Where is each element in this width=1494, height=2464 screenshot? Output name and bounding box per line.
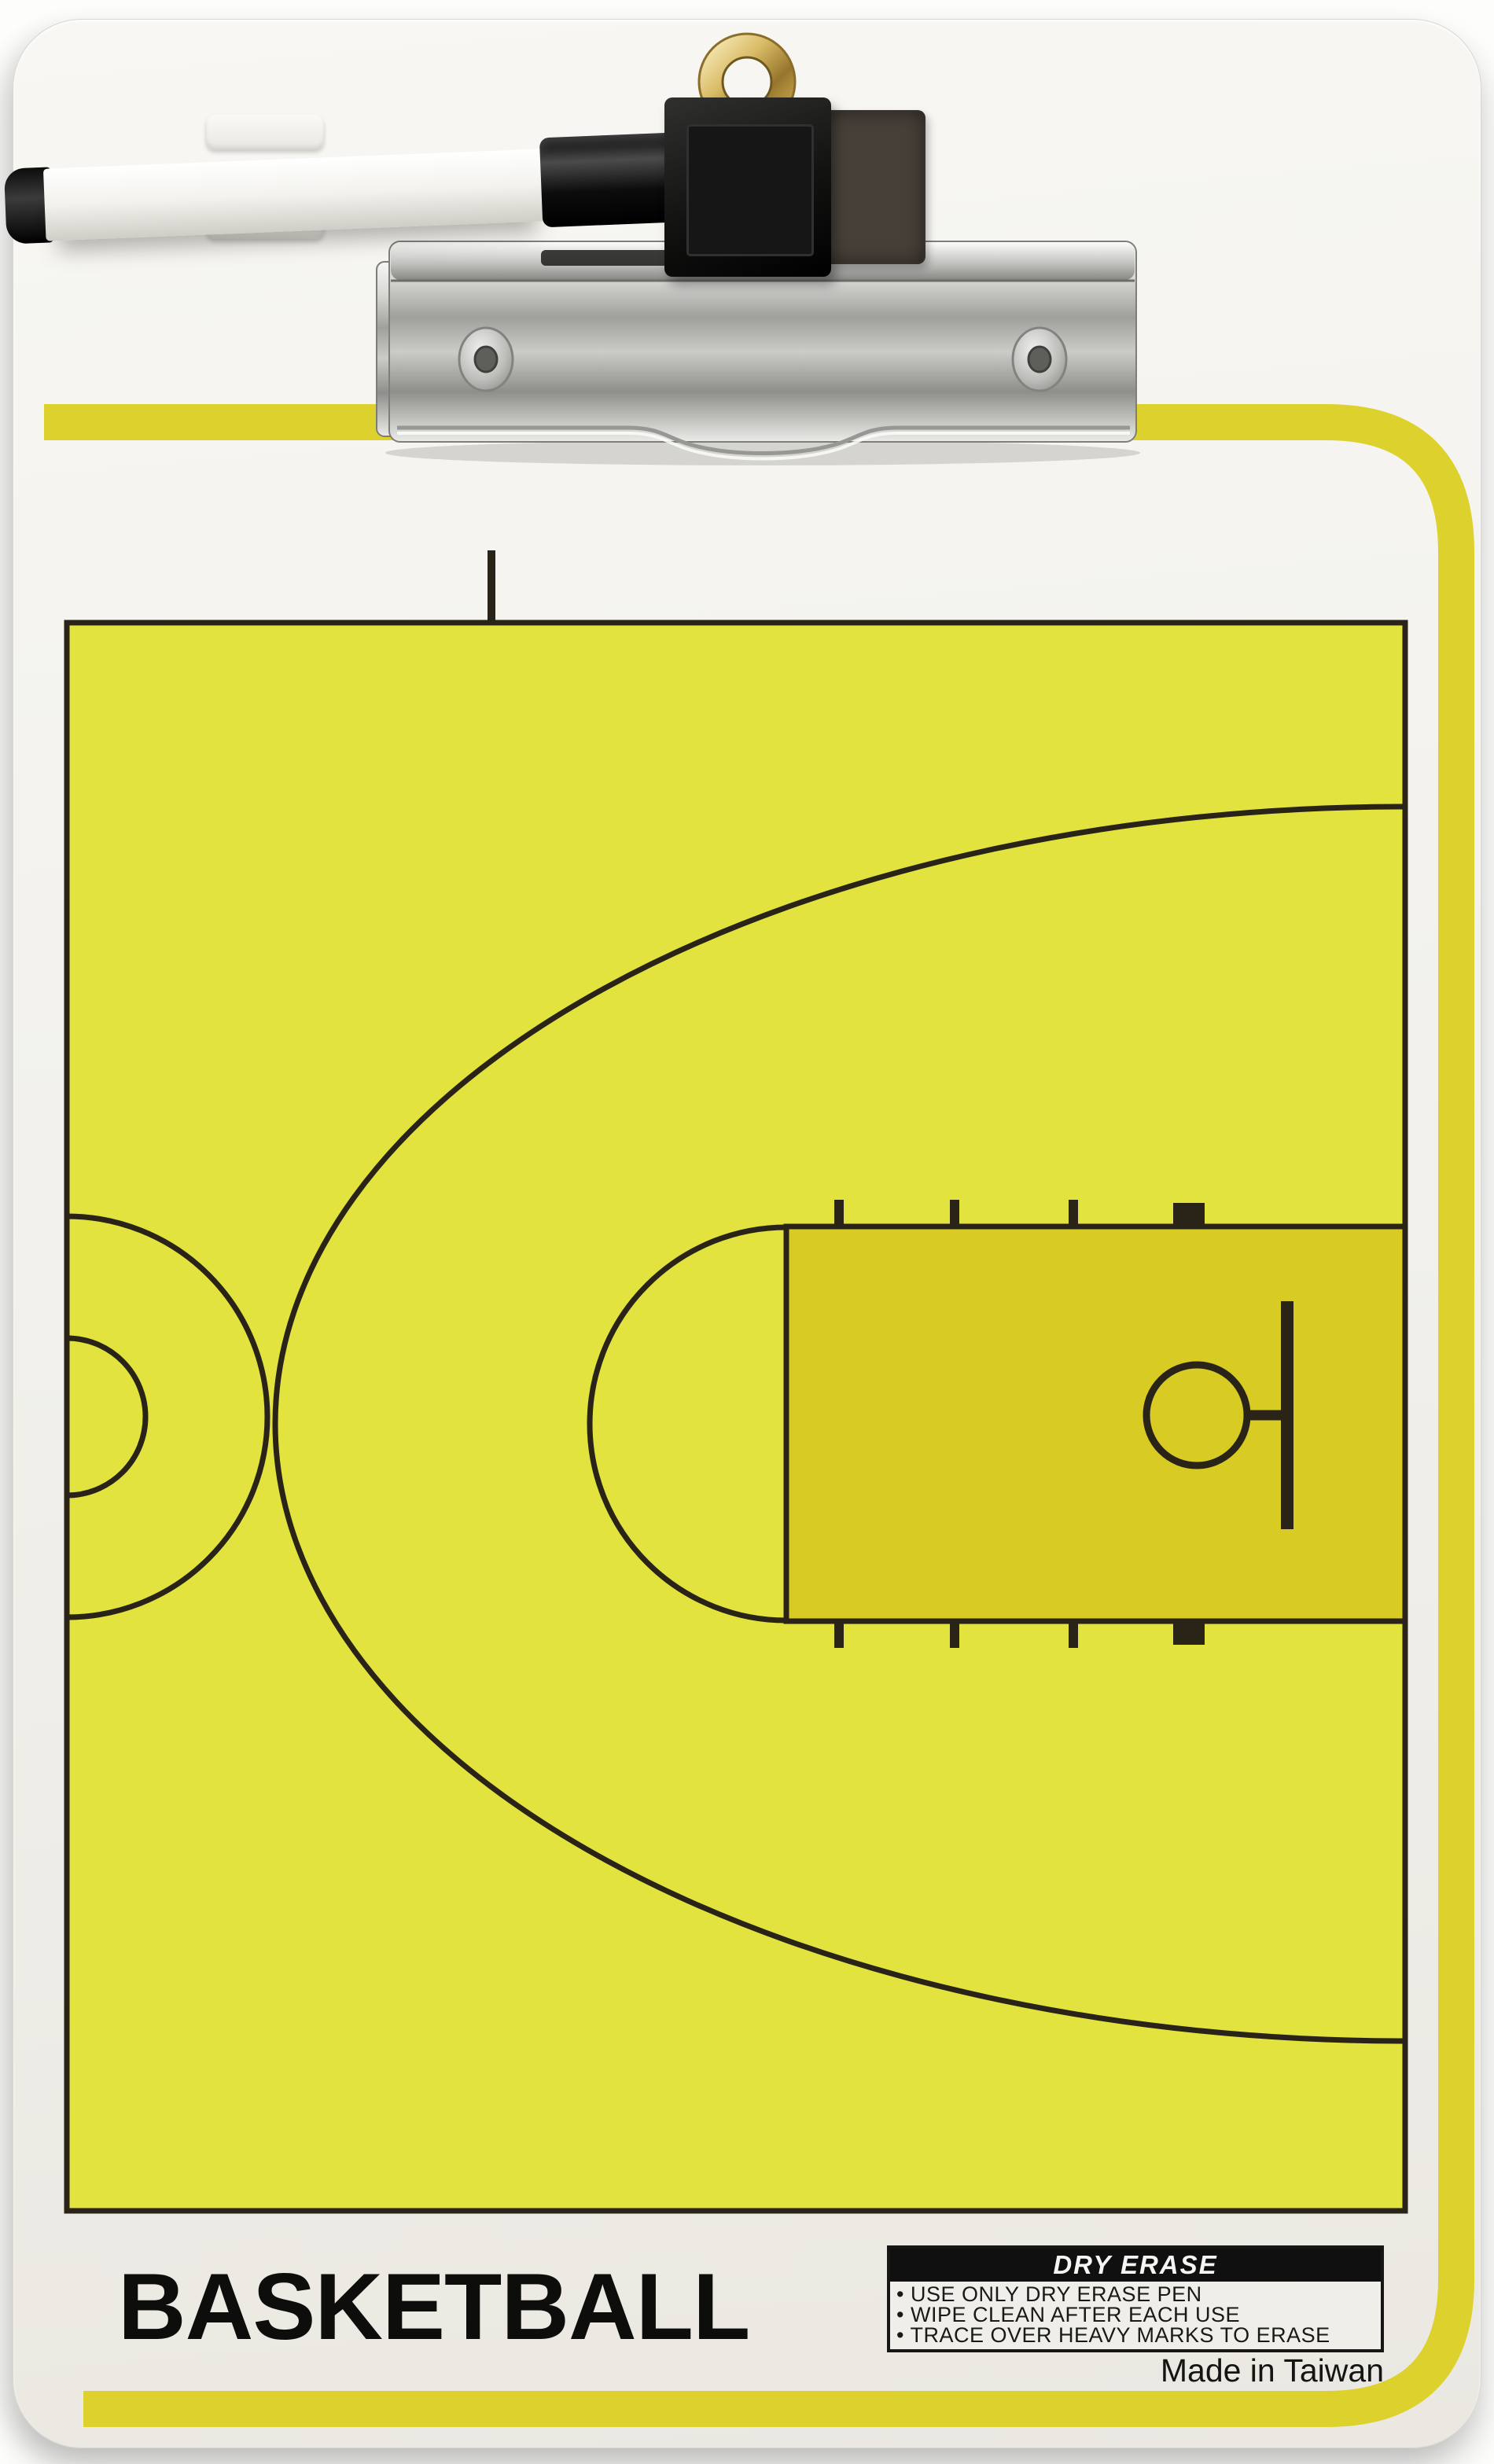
- hardware-layer: [0, 0, 1494, 2464]
- care-instructions-box: DRY ERASE • USE ONLY DRY ERASE PEN • WIP…: [887, 2245, 1384, 2352]
- made-in-label: Made in Taiwan: [887, 2352, 1384, 2389]
- care-box-header: DRY ERASE: [890, 2249, 1381, 2282]
- care-instruction: • TRACE OVER HEAVY MARKS TO ERASE: [896, 2325, 1374, 2345]
- product-title: BASKETBALL: [118, 2260, 826, 2354]
- pen-holder-face: [686, 124, 814, 256]
- care-box-items: • USE ONLY DRY ERASE PEN • WIPE CLEAN AF…: [890, 2282, 1381, 2349]
- pen-barrel: [43, 149, 549, 241]
- product-photo: BASKETBALL DRY ERASE • USE ONLY DRY ERAS…: [0, 0, 1494, 2464]
- clip-rivet-left: [459, 328, 513, 391]
- pen-retainer-tab-top: [206, 115, 324, 149]
- clip-rivet-right: [1013, 328, 1066, 391]
- care-instruction: • USE ONLY DRY ERASE PEN: [896, 2284, 1374, 2304]
- care-instruction: • WIPE CLEAN AFTER EACH USE: [896, 2304, 1374, 2325]
- pen-holder-block: [664, 97, 831, 277]
